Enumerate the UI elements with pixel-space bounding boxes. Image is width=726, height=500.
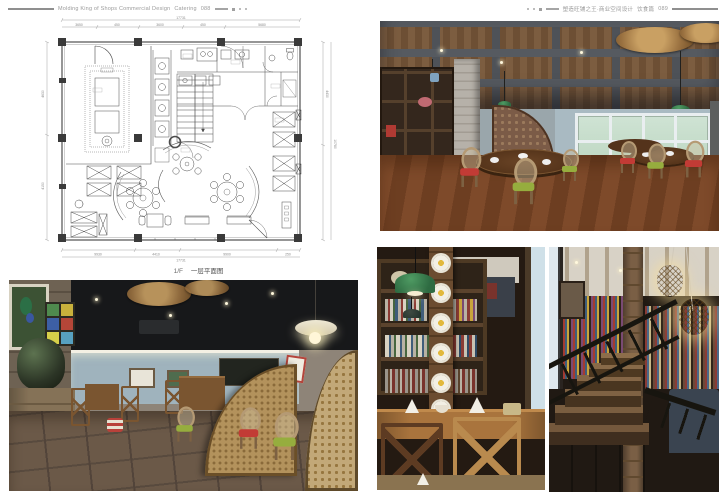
header-dash <box>546 8 559 10</box>
page-number-right: 089 <box>658 6 668 12</box>
svg-text:17731: 17731 <box>176 259 186 263</box>
book-title-en: Molding King of Shops Commercial Design <box>58 6 170 12</box>
plan-caption-text: 一层平面图 <box>191 268 224 275</box>
rattan-disc-pendant <box>185 280 229 296</box>
dining-table-left <box>85 384 119 410</box>
bowl <box>435 405 449 413</box>
running-head-left: Molding King of Shops Commercial Design … <box>8 4 247 14</box>
downlight <box>619 269 622 272</box>
cane-chair-green <box>273 412 296 460</box>
daisy-column <box>429 247 453 419</box>
svg-text:4430: 4430 <box>325 90 329 98</box>
ac-vent <box>139 320 179 334</box>
chair-cushion-green <box>513 182 535 191</box>
folded-napkin <box>469 397 485 413</box>
round-dining-tables <box>126 137 243 217</box>
striped-pouf <box>107 418 123 432</box>
dimension-labels: 17731 3650 450 3600 450 5680 9930 4410 9… <box>41 16 337 262</box>
flower-arrangement <box>418 97 432 107</box>
dining-table-mid <box>179 376 225 410</box>
section-label-zh: 饮食篇 <box>637 5 654 13</box>
svg-text:4410: 4410 <box>152 253 160 257</box>
cane-chair-red <box>620 141 635 173</box>
page-number-left: 088 <box>201 6 211 12</box>
plan-scale-label: 1/F <box>174 268 183 275</box>
svg-text:5680: 5680 <box>258 23 266 27</box>
rattan-disc-pendant <box>127 282 191 306</box>
stained-glass-cell <box>61 318 73 330</box>
chair-legs <box>240 437 257 449</box>
header-dot-ornament <box>239 8 241 10</box>
chair-cushion-green <box>273 438 296 447</box>
daisy-flower <box>433 375 449 391</box>
chair-legs <box>461 176 477 187</box>
running-head-right: 塑造旺铺之王·商业空间设计 饮食篇 089 <box>527 4 718 14</box>
svg-text:3650: 3650 <box>75 23 83 27</box>
photo-bookshelf-corner <box>377 247 545 490</box>
folded-napkin <box>405 399 419 413</box>
downlight <box>440 49 443 52</box>
green-pendant-lamp <box>395 273 435 293</box>
chair-cushion-red <box>685 160 702 167</box>
floor-plan-drawing: 17731 3650 450 3600 450 5680 9930 4410 9… <box>35 14 362 262</box>
cross-back-chair <box>121 386 139 422</box>
photo-dining-room <box>9 280 358 491</box>
restroom-suite <box>263 49 298 107</box>
chair-cushion-red <box>460 168 479 176</box>
stair-step <box>549 443 667 492</box>
lamp-glow <box>407 291 423 296</box>
washroom-fixtures <box>153 50 171 162</box>
section-label-en: Catering <box>174 6 196 12</box>
daisy-flower <box>433 255 449 271</box>
svg-text:9900: 9900 <box>223 253 231 257</box>
svg-text:3600: 3600 <box>156 23 164 27</box>
svg-text:4630: 4630 <box>41 90 45 98</box>
cane-chair-red <box>460 147 479 187</box>
pendant-cord <box>680 51 681 107</box>
svg-text:17731: 17731 <box>176 16 186 20</box>
pendant-cord <box>504 71 505 103</box>
header-rule <box>672 8 718 10</box>
header-square-ornament <box>232 8 235 11</box>
stained-glass-cell <box>47 304 59 316</box>
header-rule <box>8 8 54 10</box>
bright-window-strip <box>525 247 545 427</box>
cane-chair-red <box>685 141 702 178</box>
header-dash <box>215 8 228 10</box>
plan-caption: 1/F 一层平面图 <box>35 265 362 275</box>
stained-glass-cell <box>61 304 73 316</box>
plate <box>490 157 499 163</box>
downlight <box>580 51 583 54</box>
basket-pendant-light <box>657 265 683 297</box>
chair-legs <box>177 432 191 442</box>
stair-step <box>555 405 643 425</box>
downlight <box>169 314 172 317</box>
plate <box>666 151 674 156</box>
downlight <box>500 61 503 64</box>
chair-legs <box>275 447 295 461</box>
private-room <box>66 46 151 164</box>
chair-legs <box>648 169 662 179</box>
header-dot-ornament <box>245 8 247 10</box>
floor-plan: 17731 3650 450 3600 450 5680 9930 4410 9… <box>35 14 362 262</box>
cane-chair-green <box>513 158 535 204</box>
downlight <box>575 261 578 264</box>
glazed-jar <box>17 338 65 390</box>
chair-legs <box>686 167 701 177</box>
daisy-flower <box>433 285 449 301</box>
downlight <box>271 292 274 295</box>
book-spread: Molding King of Shops Commercial Design … <box>0 0 726 500</box>
lamp-bulb <box>309 332 321 344</box>
chair-legs <box>514 191 533 204</box>
poster-bird <box>26 313 34 323</box>
daisy-flower <box>433 345 449 361</box>
header-square-ornament <box>539 8 542 11</box>
svg-text:10780: 10780 <box>333 139 337 149</box>
svg-text:450: 450 <box>200 23 206 27</box>
header-dot-ornament <box>527 8 529 10</box>
pendant-cord <box>415 247 416 275</box>
header-dot-ornament <box>533 8 535 10</box>
downlight <box>95 298 98 301</box>
stair-step <box>549 423 649 445</box>
stained-glass-cell <box>47 318 59 330</box>
shelf-book <box>386 125 396 137</box>
tiny-room-labels <box>93 54 284 152</box>
cane-chair-red <box>239 407 259 449</box>
stained-glass-cell <box>61 332 73 344</box>
chair-legs <box>563 172 576 181</box>
cane-chair-green <box>647 143 664 178</box>
foreground-table-edge <box>377 475 545 490</box>
svg-text:9930: 9930 <box>94 253 102 257</box>
downlight <box>225 302 228 305</box>
booth-seating-right <box>273 110 301 228</box>
plate <box>542 159 551 165</box>
basket-pendant-light <box>679 299 709 335</box>
svg-text:450: 450 <box>114 23 120 27</box>
svg-text:4150: 4150 <box>41 182 45 190</box>
pendant-cord <box>315 280 316 324</box>
woven-fan-screen <box>305 350 358 491</box>
menu-caddy <box>503 403 521 415</box>
book-title-zh: 塑造旺铺之王·商业空间设计 <box>563 5 633 13</box>
framed-picture <box>129 368 155 388</box>
svg-text:250: 250 <box>285 253 291 257</box>
cane-chair-green <box>176 406 193 441</box>
shelf-vase <box>430 73 439 82</box>
chair-legs <box>621 164 634 173</box>
cane-chair-green <box>562 149 577 181</box>
small-pendant-lamp <box>403 309 421 318</box>
curved-screens <box>113 141 259 220</box>
chair-cushion-red <box>239 429 259 437</box>
folded-napkin <box>417 473 429 485</box>
book-spines-row <box>385 335 429 357</box>
photo-dining-hall <box>380 21 719 231</box>
photo-staircase <box>549 247 719 492</box>
daisy-flower <box>433 315 449 331</box>
framed-mirror <box>559 281 585 319</box>
bottom-seating-and-entry <box>139 214 267 240</box>
